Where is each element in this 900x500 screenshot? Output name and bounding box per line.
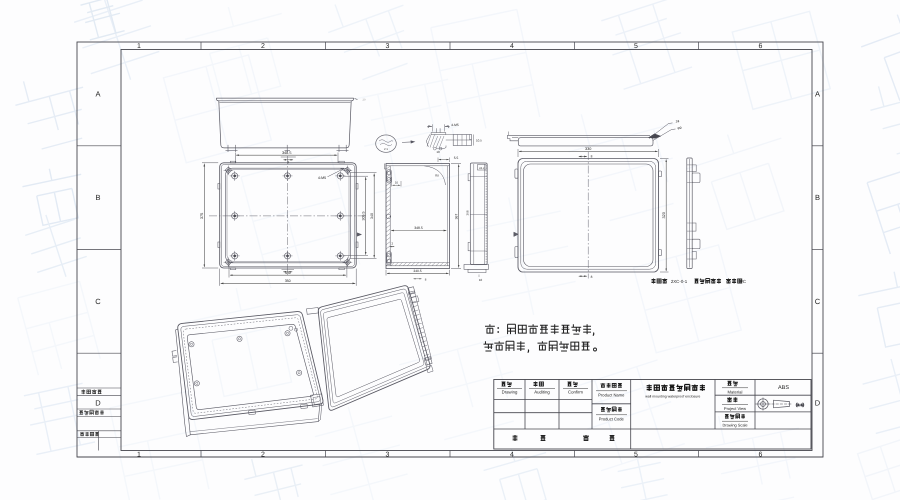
svg-text:10: 10 xyxy=(479,278,483,282)
svg-text:8: 8 xyxy=(591,155,593,159)
svg-text:348.5: 348.5 xyxy=(414,226,423,230)
svg-text:375: 375 xyxy=(200,213,204,219)
svg-text:2:1: 2:1 xyxy=(384,147,388,151)
svg-text:Auditing: Auditing xyxy=(534,390,550,395)
svg-text:Material: Material xyxy=(728,389,743,394)
svg-text:350: 350 xyxy=(285,279,291,283)
svg-text:5.5: 5.5 xyxy=(454,156,459,160)
svg-text:Confirm: Confirm xyxy=(568,390,583,395)
svg-text:PC: PC xyxy=(740,279,746,284)
svg-text:330: 330 xyxy=(585,147,591,151)
svg-text:ABS: ABS xyxy=(778,385,789,391)
svg-text:10.5: 10.5 xyxy=(476,138,482,142)
svg-text:D: D xyxy=(815,399,821,408)
svg-text:320: 320 xyxy=(662,212,666,218)
svg-text:A: A xyxy=(95,90,100,99)
svg-text:367: 367 xyxy=(454,214,458,220)
svg-text:(a a): (a a) xyxy=(796,402,805,407)
svg-text:368: 368 xyxy=(466,210,470,215)
svg-text:A: A xyxy=(815,90,820,99)
svg-text:C: C xyxy=(815,297,821,306)
svg-text:340: 340 xyxy=(370,213,374,219)
svg-text:Product Code: Product Code xyxy=(599,417,625,422)
svg-text:20: 20 xyxy=(363,99,366,102)
svg-text:1: 1 xyxy=(137,452,141,459)
svg-text:24.2: 24.2 xyxy=(479,166,485,170)
svg-text:Drawing: Drawing xyxy=(502,390,518,395)
svg-text:6: 6 xyxy=(759,43,763,50)
svg-text:4: 4 xyxy=(510,452,514,459)
svg-text:24: 24 xyxy=(676,120,680,124)
svg-text:Project View: Project View xyxy=(724,406,746,411)
svg-text:10: 10 xyxy=(436,150,440,154)
svg-text:4-M5: 4-M5 xyxy=(451,123,459,127)
svg-text:Product Name: Product Name xyxy=(598,393,625,398)
svg-text:305.5: 305.5 xyxy=(361,212,365,221)
svg-text:1: 1 xyxy=(137,43,141,50)
svg-text:8: 8 xyxy=(591,275,593,279)
svg-text:D: D xyxy=(95,399,101,408)
svg-text:3: 3 xyxy=(386,43,390,50)
svg-text:Drawing Scale: Drawing Scale xyxy=(722,423,747,428)
svg-text:2XC-0-1: 2XC-0-1 xyxy=(671,279,688,284)
svg-text:B: B xyxy=(815,193,820,202)
svg-text:4-M5: 4-M5 xyxy=(318,176,326,180)
svg-text:6: 6 xyxy=(759,452,763,459)
svg-text:348.5: 348.5 xyxy=(413,269,421,273)
svg-text:4: 4 xyxy=(510,43,514,50)
svg-text:2: 2 xyxy=(261,452,265,459)
svg-text:10: 10 xyxy=(395,180,399,184)
svg-text:C: C xyxy=(95,297,101,306)
svg-text:5: 5 xyxy=(634,43,638,50)
svg-text:2: 2 xyxy=(391,242,393,246)
svg-text:348.5: 348.5 xyxy=(282,151,292,155)
svg-text:5: 5 xyxy=(634,452,638,459)
svg-text:wall mounting waterproof enclo: wall mounting waterproof enclosure xyxy=(645,395,700,399)
svg-text:B: B xyxy=(95,193,100,202)
svg-text:2: 2 xyxy=(261,43,265,50)
svg-text:φ9: φ9 xyxy=(677,126,681,130)
svg-text:8: 8 xyxy=(425,277,427,281)
svg-text:R8: R8 xyxy=(435,174,439,178)
svg-text:3: 3 xyxy=(386,452,390,459)
